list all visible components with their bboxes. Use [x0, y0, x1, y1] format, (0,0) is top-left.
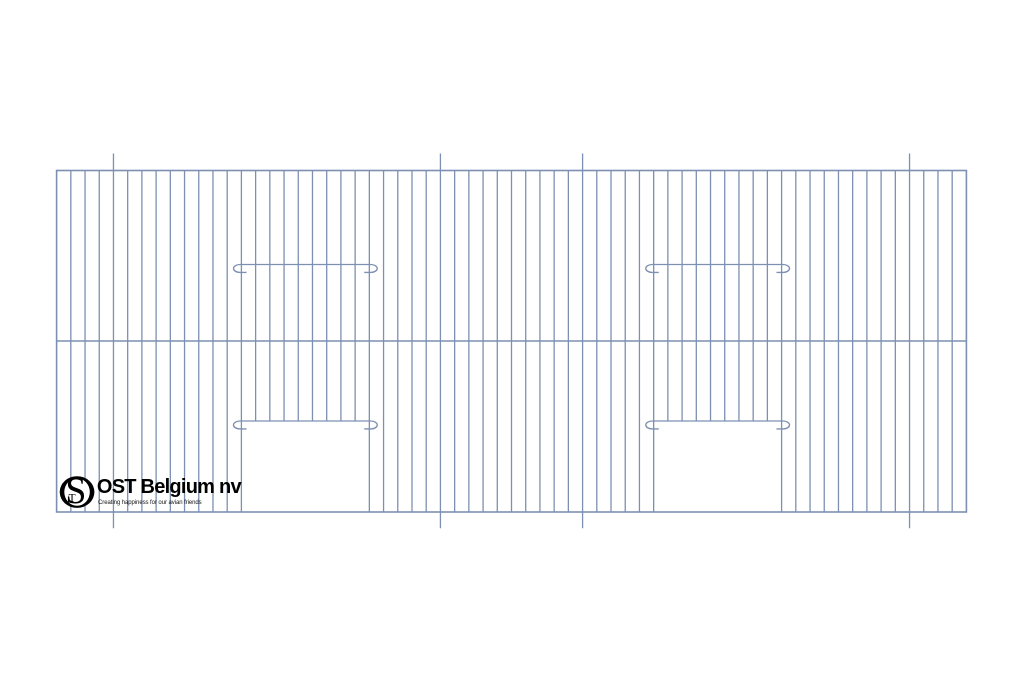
svg-text:S: S — [65, 470, 86, 512]
svg-text:Creating happiness for our avi: Creating happiness for our avian friends — [98, 500, 202, 506]
svg-text:OST Belgium nv: OST Belgium nv — [97, 476, 243, 498]
